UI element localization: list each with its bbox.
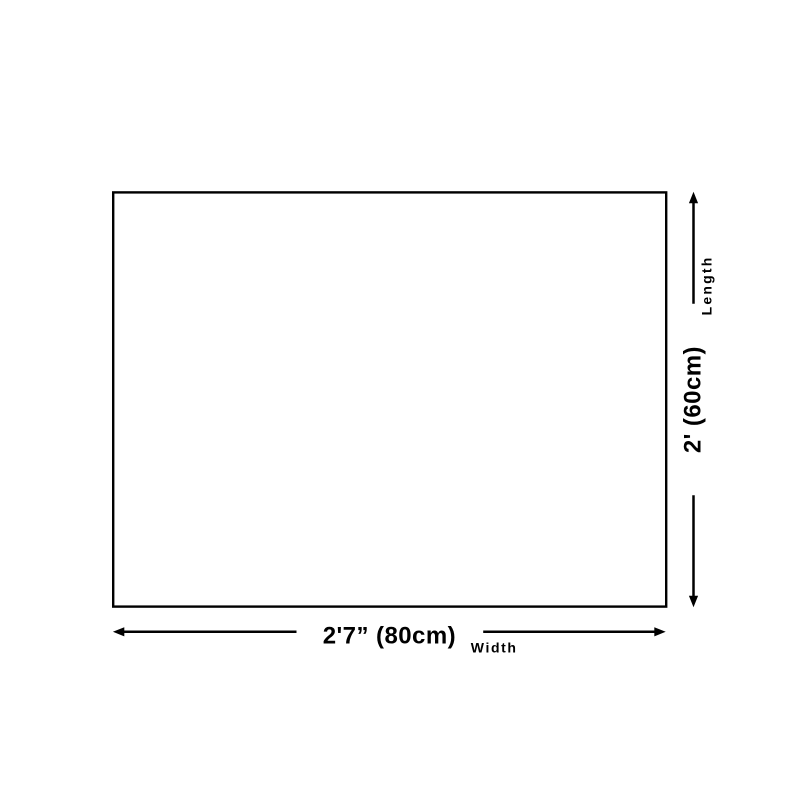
svg-text:Width: Width <box>471 639 518 655</box>
svg-text:Length: Length <box>699 256 715 316</box>
svg-text:2'7” (80cm): 2'7” (80cm) <box>323 623 456 650</box>
svg-text:2' (60cm): 2' (60cm) <box>679 346 706 453</box>
